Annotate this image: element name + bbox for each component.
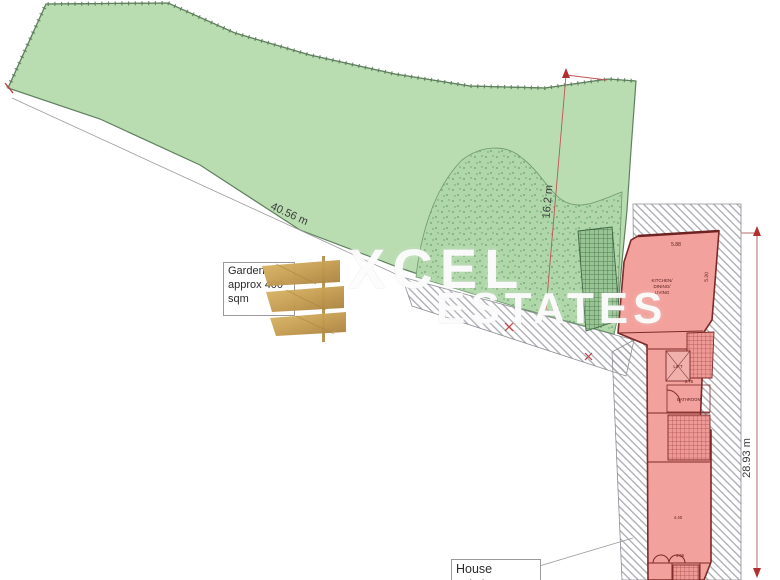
bathroom-label: BATHROOM bbox=[677, 397, 701, 402]
arrowhead-up-28 bbox=[753, 226, 761, 236]
house-note-line1: House bbox=[456, 562, 536, 578]
xcel-logo-flag-icon bbox=[256, 254, 356, 344]
dimension-line-16-2-ext bbox=[566, 75, 607, 80]
dim-5-88: 5.88 bbox=[671, 242, 681, 248]
house-yard-upper bbox=[687, 332, 714, 378]
arrowhead-down-28 bbox=[753, 568, 761, 578]
house-note: House existing bbox=[451, 559, 541, 580]
kitchen-label-1: KITCHEN/ bbox=[651, 278, 673, 283]
lift-label: LIFT bbox=[673, 364, 683, 369]
house-yard-bottom bbox=[673, 565, 699, 580]
kitchen-label-3: LIVING bbox=[655, 290, 670, 295]
dim-4-40: 4.40 bbox=[674, 515, 683, 520]
site-plan-screenshot: 40.56 m 16.2 m bbox=[0, 0, 780, 580]
dim-4-06: 4.06 bbox=[676, 553, 685, 558]
house-note-leader bbox=[536, 538, 633, 567]
dim-2-75: 2.75 bbox=[685, 379, 694, 384]
kitchen-label-2: DINING/ bbox=[653, 284, 671, 289]
arrowhead-up bbox=[562, 68, 570, 78]
site-plan-drawing: 40.56 m 16.2 m bbox=[0, 0, 780, 580]
xcel-logo bbox=[256, 254, 356, 344]
dimension-28-93-label: 28.93 m bbox=[741, 438, 753, 478]
dim-5-20: 5.20 bbox=[704, 272, 711, 282]
house-yard-mid bbox=[668, 415, 710, 460]
